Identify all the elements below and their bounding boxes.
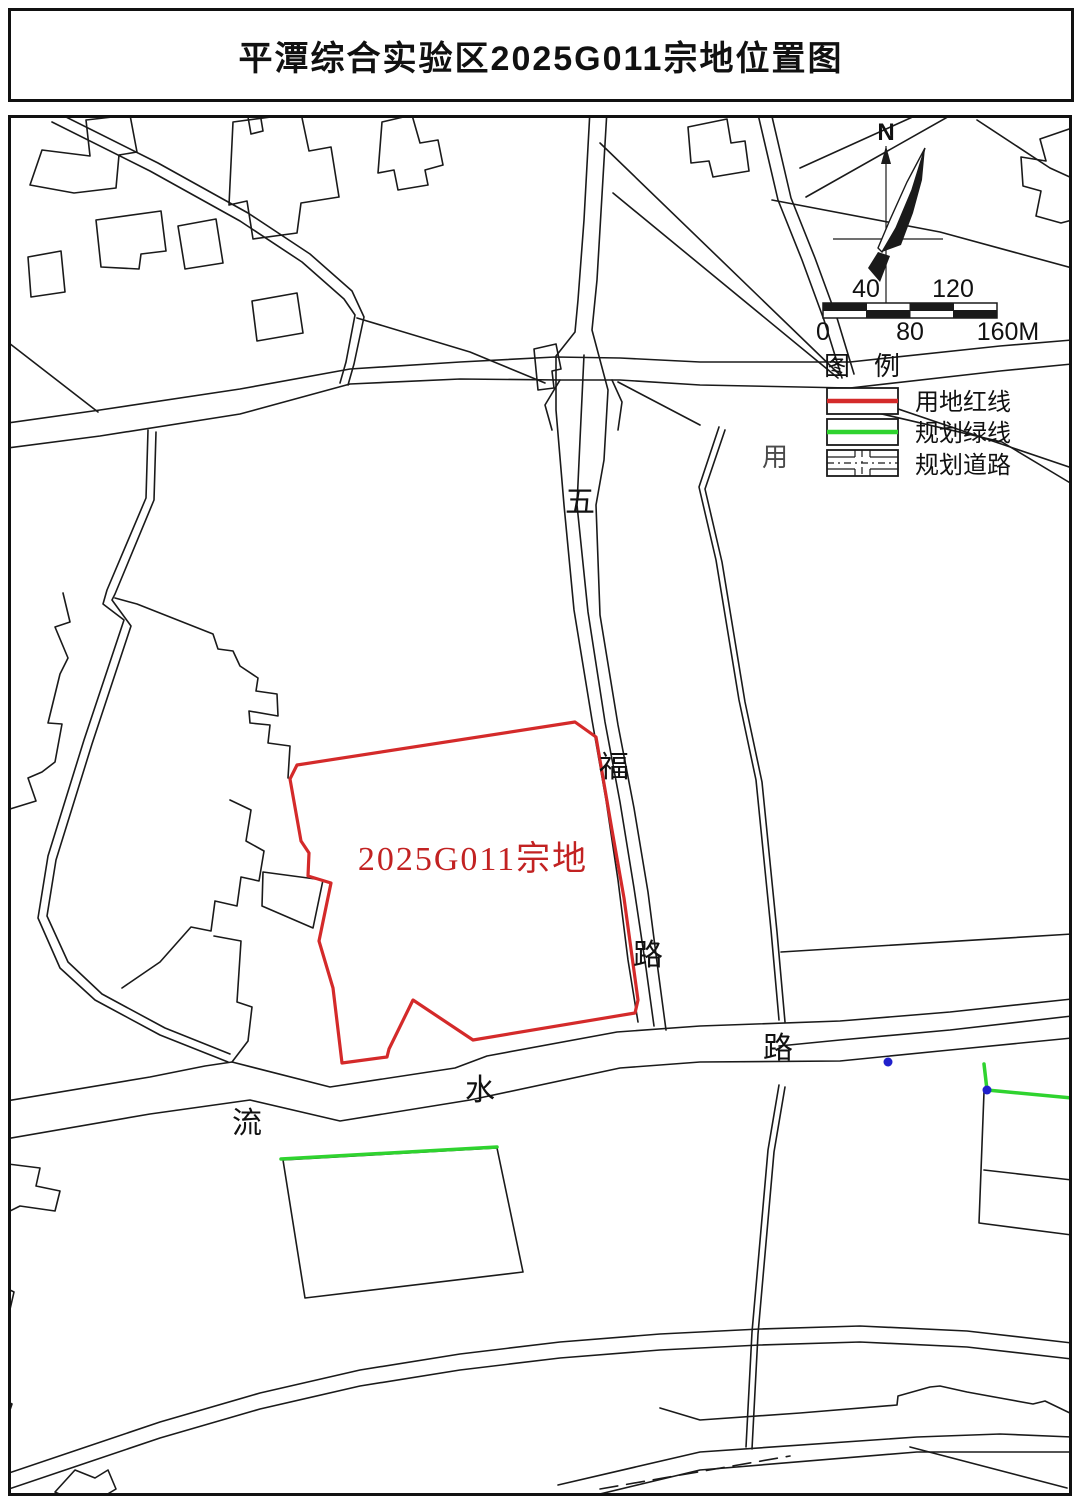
legend: 图 例 用地红线 规划绿线 规划道路 <box>824 352 1011 479</box>
scale-label-40: 40 <box>852 275 880 303</box>
map-labels: 2025G011宗地 五 福 路 流 水 路 用 <box>232 443 793 1140</box>
title-bar: 平潭综合实验区2025G011宗地位置图 <box>8 8 1074 102</box>
scale-label-80: 80 <box>896 318 924 346</box>
blue-dot <box>983 1086 992 1095</box>
road-label-shui: 水 <box>465 1074 495 1107</box>
scale-label-120: 120 <box>932 275 974 303</box>
blue-dot <box>884 1058 893 1067</box>
legend-label-plannedroad: 规划道路 <box>915 452 1011 479</box>
north-label: N <box>877 119 894 146</box>
parcel-label: 2025G011宗地 <box>358 840 588 878</box>
road-label-lu2: 路 <box>763 1032 793 1065</box>
legend-label-greenline: 规划绿线 <box>915 420 1011 447</box>
scale-label-0: 0 <box>816 318 830 346</box>
road-label-liu: 流 <box>232 1107 262 1140</box>
parcel-redline <box>290 722 638 1063</box>
scale-label-160m: 160M <box>977 318 1040 346</box>
road-label-fu: 福 <box>599 751 629 784</box>
stray-label-yong: 用 <box>762 443 788 472</box>
scale-bar: 40 120 0 80 160M <box>816 275 1039 346</box>
legend-label-redline: 用地红线 <box>915 389 1011 416</box>
legend-title-li: 例 <box>874 352 900 381</box>
north-arrow: N <box>833 119 943 306</box>
road-label-lu1: 路 <box>633 939 663 972</box>
page-title: 平潭综合实验区2025G011宗地位置图 <box>239 31 844 80</box>
legend-title-tu: 图 <box>824 352 850 381</box>
road-label-wu: 五 <box>565 486 595 519</box>
buildings-layer <box>28 115 1072 390</box>
page: 平潭综合实验区2025G011宗地位置图 <box>0 0 1080 1504</box>
survey-dots <box>884 1058 992 1095</box>
map-area: N 40 120 0 80 160M 图 <box>8 115 1072 1496</box>
